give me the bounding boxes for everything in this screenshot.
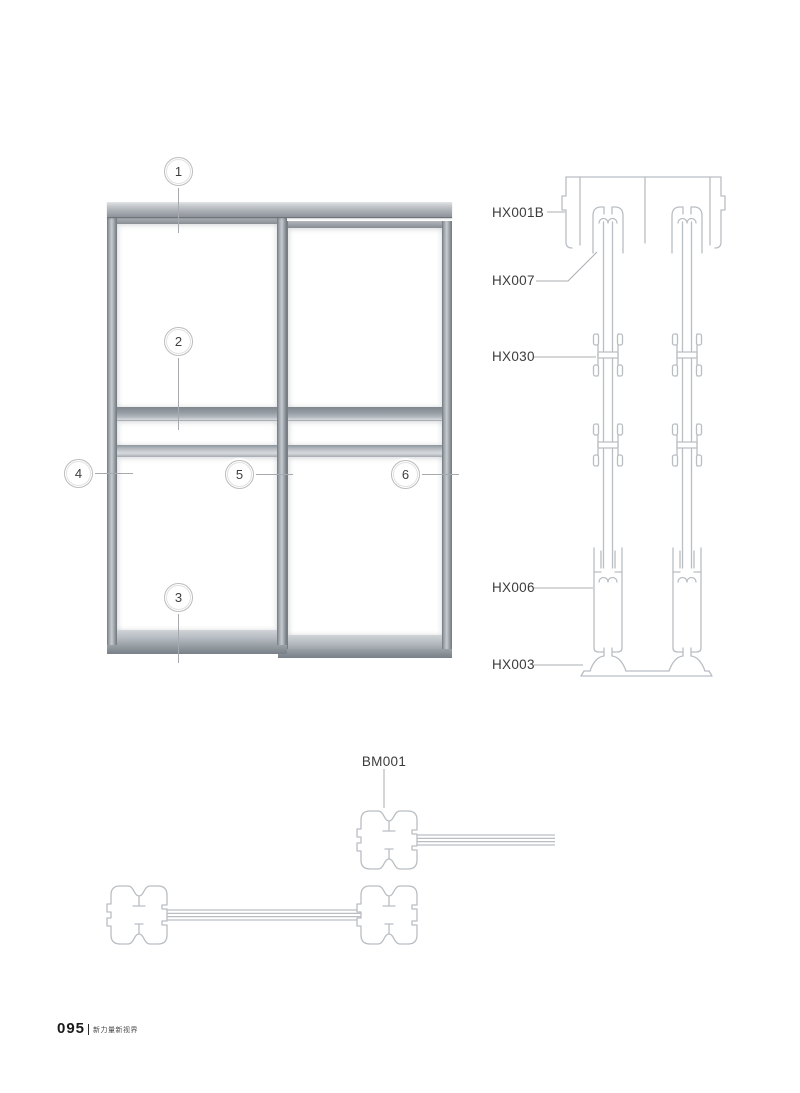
panel-section-right bbox=[683, 222, 692, 568]
top-guide-profile-left bbox=[593, 207, 623, 253]
plan-panel-strip-upper bbox=[417, 835, 555, 845]
left-door-mid-rail-1 bbox=[117, 407, 277, 421]
footer-tagline: 新力量新视界 bbox=[93, 1025, 138, 1035]
top-track-profile bbox=[562, 177, 725, 248]
door-panel-left bbox=[107, 217, 287, 654]
h-connector-left-lower bbox=[594, 424, 623, 466]
left-door-mid-rail-2 bbox=[117, 445, 277, 457]
callout-4-number: 4 bbox=[75, 466, 82, 481]
section-label-leaders bbox=[534, 212, 597, 665]
h-connector-right-upper bbox=[673, 334, 702, 376]
label-bm001: BM001 bbox=[356, 754, 412, 769]
left-door-base bbox=[107, 645, 287, 654]
left-door-right-stile bbox=[277, 217, 287, 654]
callout-3: 3 bbox=[164, 583, 193, 612]
label-hx003: HX003 bbox=[492, 657, 535, 672]
right-door-mid-rail-1 bbox=[288, 407, 442, 421]
footer: 095 新力量新视界 bbox=[57, 1020, 138, 1037]
label-hx030: HX030 bbox=[492, 349, 535, 364]
top-guide-profile-right bbox=[672, 207, 702, 253]
right-door-top-rail bbox=[288, 221, 442, 228]
callout-1-number: 1 bbox=[175, 164, 182, 179]
callout-5-number: 5 bbox=[236, 467, 243, 482]
callout-6-number: 6 bbox=[402, 467, 409, 482]
panel-section-left bbox=[604, 222, 613, 568]
left-door-glass-upper bbox=[117, 224, 277, 407]
plan-drawing bbox=[85, 750, 555, 965]
bottom-roller-right bbox=[673, 548, 701, 652]
callout-2: 2 bbox=[164, 327, 193, 356]
door-panel-right bbox=[278, 221, 452, 658]
left-door-top-rail bbox=[117, 217, 277, 224]
callout-leader-2 bbox=[178, 355, 179, 430]
left-door-glass-strip bbox=[117, 421, 277, 445]
callout-5: 5 bbox=[225, 460, 254, 489]
callout-leader-6 bbox=[419, 474, 459, 475]
h-connector-right-lower bbox=[673, 424, 702, 466]
label-hx007: HX007 bbox=[492, 273, 535, 288]
label-hx001b: HX001B bbox=[492, 205, 544, 220]
bottom-roller-left bbox=[594, 548, 622, 652]
right-door-glass-lower bbox=[288, 457, 442, 635]
right-door-base bbox=[278, 649, 452, 658]
stile-profile-upper-left bbox=[357, 811, 417, 869]
callout-3-number: 3 bbox=[175, 590, 182, 605]
callout-leader-1 bbox=[178, 185, 179, 233]
callout-leader-4 bbox=[92, 473, 133, 474]
right-door-mid-rail-2 bbox=[288, 445, 442, 457]
callout-4: 4 bbox=[64, 459, 93, 488]
h-connector-left-upper bbox=[594, 334, 623, 376]
top-track-bar bbox=[107, 202, 452, 218]
label-hx006: HX006 bbox=[492, 580, 535, 595]
left-door-sill bbox=[117, 630, 277, 645]
plan-panel-strip-lower bbox=[167, 910, 361, 920]
right-door-sill bbox=[288, 635, 442, 650]
callout-6: 6 bbox=[391, 460, 420, 489]
section-drawing bbox=[530, 165, 745, 695]
right-door-glass-strip bbox=[288, 421, 442, 445]
right-door-right-stile bbox=[442, 221, 452, 658]
left-door-glass-lower bbox=[117, 457, 277, 630]
right-door-glass-upper bbox=[288, 228, 442, 407]
stile-profile-lower-right bbox=[357, 886, 417, 944]
left-door-left-stile bbox=[107, 217, 117, 654]
callout-1: 1 bbox=[164, 157, 193, 186]
callout-leader-3 bbox=[178, 611, 179, 663]
callout-leader-5 bbox=[253, 474, 293, 475]
stile-profile-lower-left bbox=[107, 886, 167, 944]
page-number: 095 bbox=[57, 1020, 85, 1037]
footer-divider bbox=[88, 1024, 89, 1035]
callout-2-number: 2 bbox=[175, 334, 182, 349]
page: 1 2 3 4 5 6 bbox=[0, 0, 800, 1093]
